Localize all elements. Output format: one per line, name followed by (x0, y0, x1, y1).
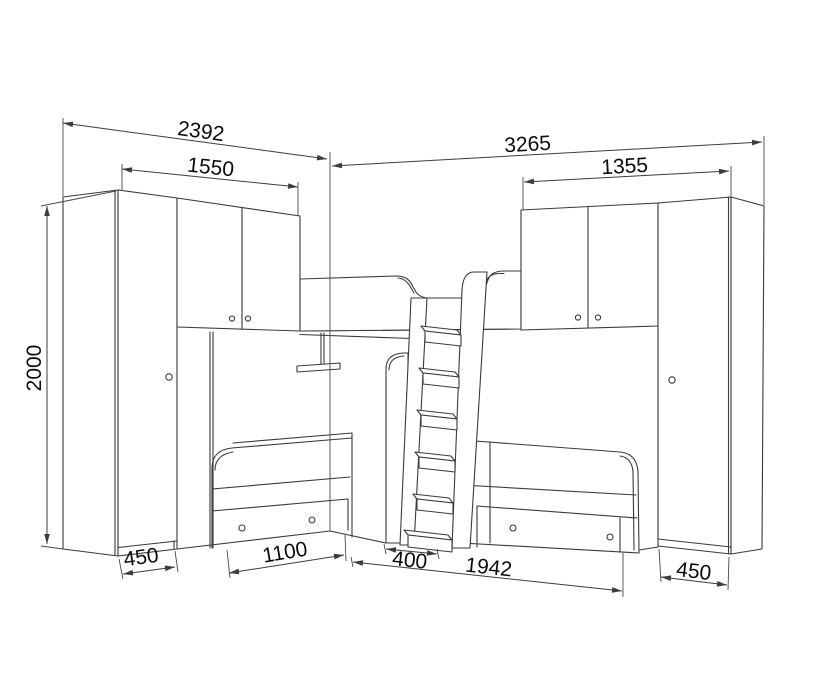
dim-label-right-total: 3265 (504, 132, 552, 158)
bed-mattress-line (462, 485, 636, 495)
bed-armrest-curve-inner (215, 452, 233, 470)
right-lower-bed (462, 440, 658, 553)
ladder-step (413, 494, 453, 514)
drawer-handle-icon (510, 525, 516, 531)
left-cabinet-front (177, 198, 300, 331)
left-overhead-cabinet (177, 198, 300, 331)
bed-mattress-line (212, 477, 350, 489)
desk-edge-line (300, 335, 412, 339)
bed-backrest-top (462, 440, 620, 452)
dim-label-right-depth: 450 (675, 558, 713, 585)
right-wardrobe-side-panel (731, 197, 764, 554)
right-cabinet-front (521, 203, 658, 330)
left-wardrobe-side-panel (63, 190, 118, 556)
wall-shelf-board (297, 363, 340, 372)
bed-armrest-curve (620, 452, 639, 553)
ladder-step (415, 452, 455, 472)
ladder-step (419, 368, 459, 388)
bed-backrest-top (233, 433, 352, 443)
dim-label-right-upper: 1355 (601, 154, 649, 179)
right-wardrobe-front (658, 197, 731, 554)
dim-label-right-bed: 1942 (464, 554, 513, 582)
left-unit (63, 190, 352, 556)
bed-drawer-top (212, 499, 348, 511)
dim-label-left-bed: 1100 (261, 538, 309, 568)
dim-label-ladder: 400 (391, 547, 428, 574)
ladder-step (417, 410, 457, 430)
left-wardrobe-front (118, 190, 177, 556)
dim-label-left-total: 2392 (176, 117, 225, 146)
technical-drawing-page: 2392 1550 3265 1355 2000 450 1100 400 19… (0, 0, 816, 700)
left-wardrobe (63, 190, 177, 556)
floor-to-wardrobe (639, 547, 658, 550)
drawer-handle-icon (607, 534, 613, 540)
bed-bottom-edge (462, 543, 639, 553)
corner-floor-line (330, 531, 386, 543)
drawer-handle-icon (309, 517, 315, 523)
drawer-handle-icon (239, 525, 245, 531)
dim-label-left-depth: 450 (122, 544, 160, 571)
right-wardrobe (658, 197, 764, 554)
dim-label-left-upper: 1550 (186, 154, 235, 182)
wall-shelf (297, 333, 340, 372)
bunk-bed-set-drawing: 2392 1550 3265 1355 2000 450 1100 400 19… (0, 0, 816, 700)
right-unit (462, 197, 764, 554)
bed-drawer-top (477, 506, 637, 518)
right-overhead-cabinet (521, 203, 658, 330)
bed-armrest-curve-inner (620, 456, 634, 550)
dim-label-height: 2000 (23, 345, 46, 392)
bed-bottom-edge (177, 531, 330, 549)
